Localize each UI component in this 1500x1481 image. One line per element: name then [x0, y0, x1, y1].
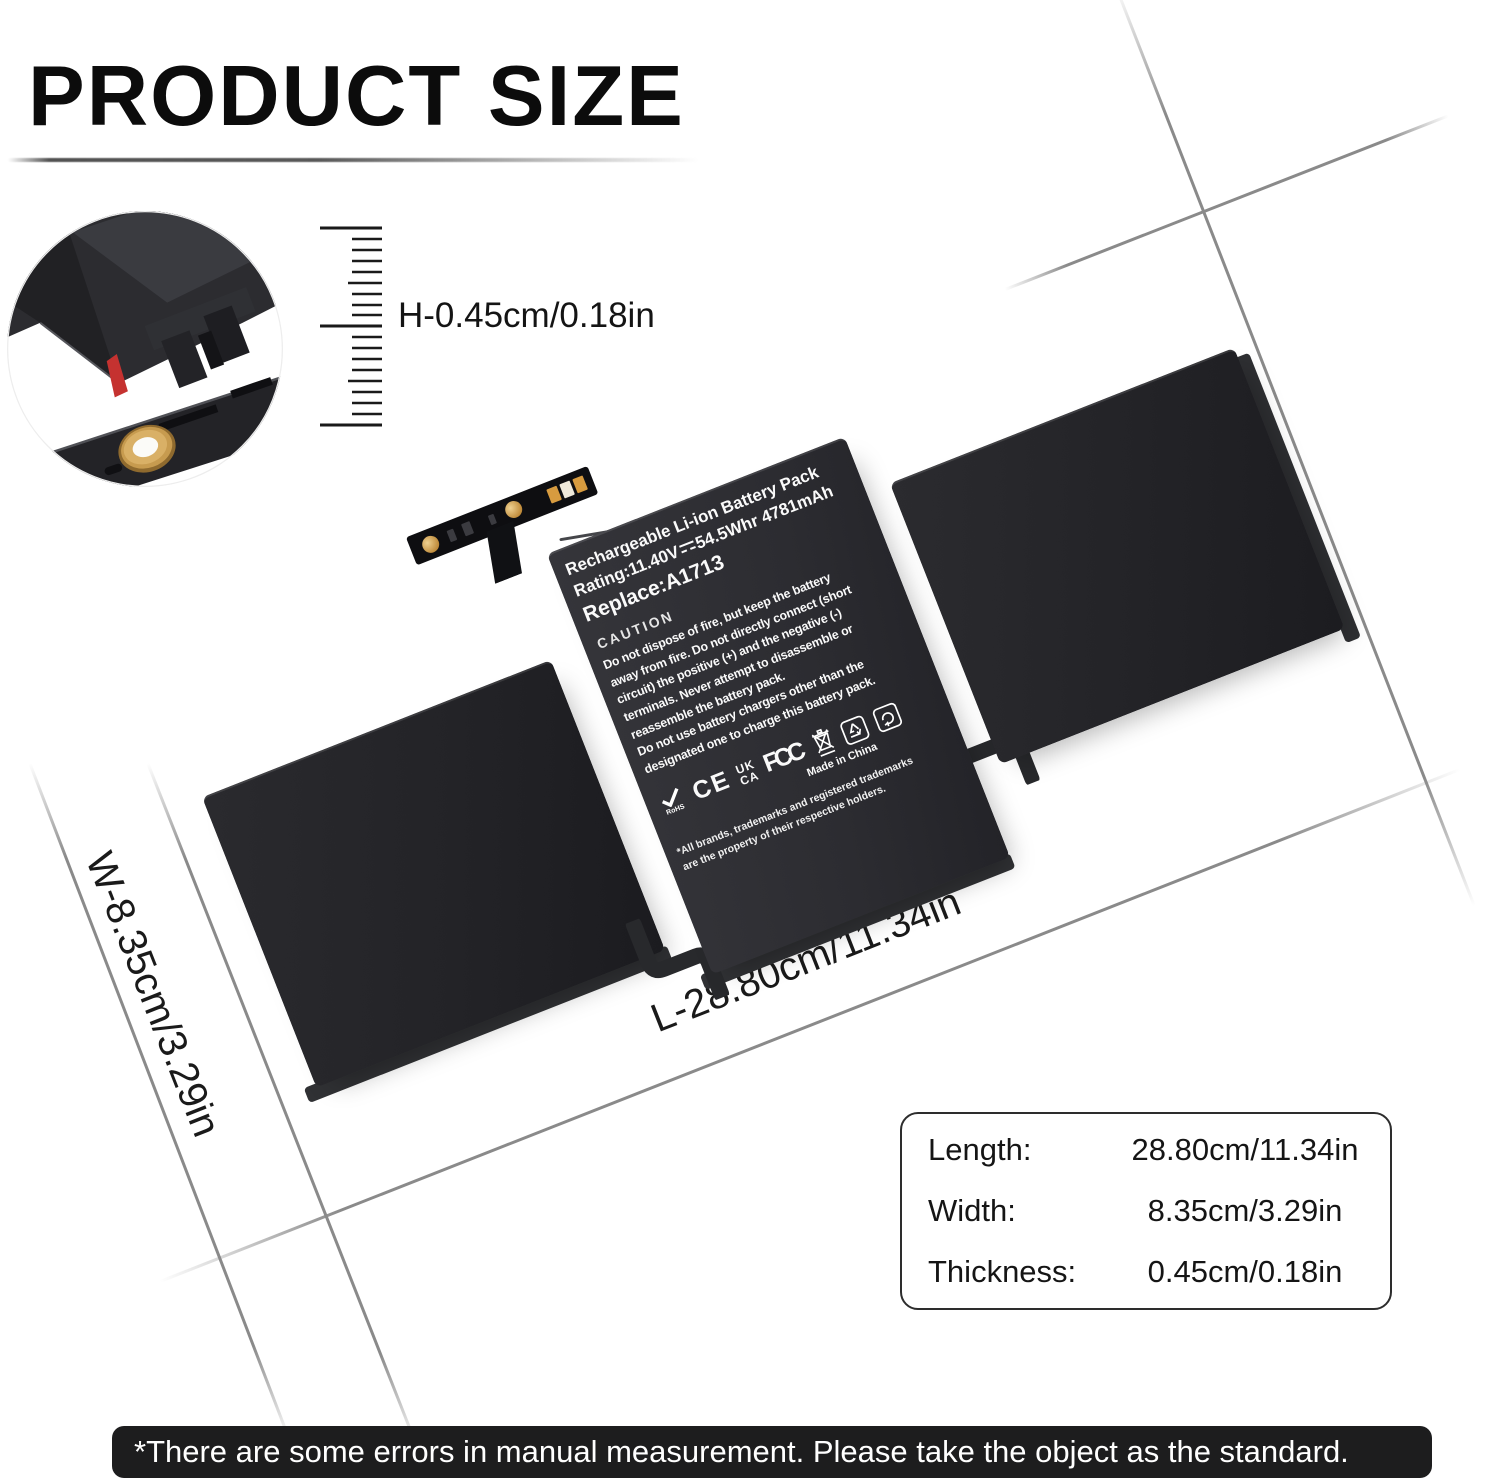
row-value: 28.80cm/11.34in: [1118, 1132, 1390, 1168]
contact-pad-icon: [559, 481, 575, 499]
fcc-mark-icon: FCC: [759, 736, 810, 779]
row-value: 8.35cm/3.29in: [1118, 1193, 1390, 1229]
size-table: Length: 28.80cm/11.34in Width: 8.35cm/3.…: [900, 1112, 1392, 1310]
row-label: Thickness:: [928, 1254, 1118, 1290]
corner-photo: [6, 210, 284, 488]
rohs-check-icon: RoHS: [655, 785, 690, 819]
contact-pad-icon: [546, 486, 562, 504]
gold-pad-icon: [503, 498, 525, 520]
gold-pad-icon: [420, 533, 442, 555]
corner-zoom-inset: [6, 210, 284, 488]
title-underline: [8, 158, 698, 162]
dim-line-top: [1005, 114, 1449, 290]
recycle-square-icon: [838, 713, 872, 747]
table-row-width: Width: 8.35cm/3.29in: [902, 1193, 1390, 1229]
disclaimer-bar: *There are some errors in manual measure…: [112, 1426, 1432, 1478]
disclaimer-text: *There are some errors in manual measure…: [134, 1434, 1349, 1470]
recycle-loop-square-icon: [871, 700, 905, 734]
weee-bin-icon: [808, 725, 840, 760]
height-ruler: [318, 222, 386, 432]
battery-cell-left: [202, 660, 665, 1088]
row-label: Length:: [928, 1132, 1118, 1168]
dc-voltage-icon: [677, 538, 696, 556]
row-value: 0.45cm/0.18in: [1118, 1254, 1390, 1290]
row-label: Width:: [928, 1193, 1118, 1229]
contact-pad-icon: [572, 475, 588, 493]
table-row-thickness: Thickness: 0.45cm/0.18in: [902, 1254, 1390, 1290]
ce-mark-icon: CE: [689, 766, 736, 807]
table-row-length: Length: 28.80cm/11.34in: [902, 1132, 1390, 1168]
width-label: W-8.35cm/3.29in: [76, 846, 228, 1143]
page-title: PRODUCT SIZE: [28, 48, 685, 146]
ukca-mark-icon: UK CA: [734, 758, 761, 788]
height-label: H-0.45cm/0.18in: [398, 296, 655, 336]
battery-cell-right: [890, 348, 1345, 765]
